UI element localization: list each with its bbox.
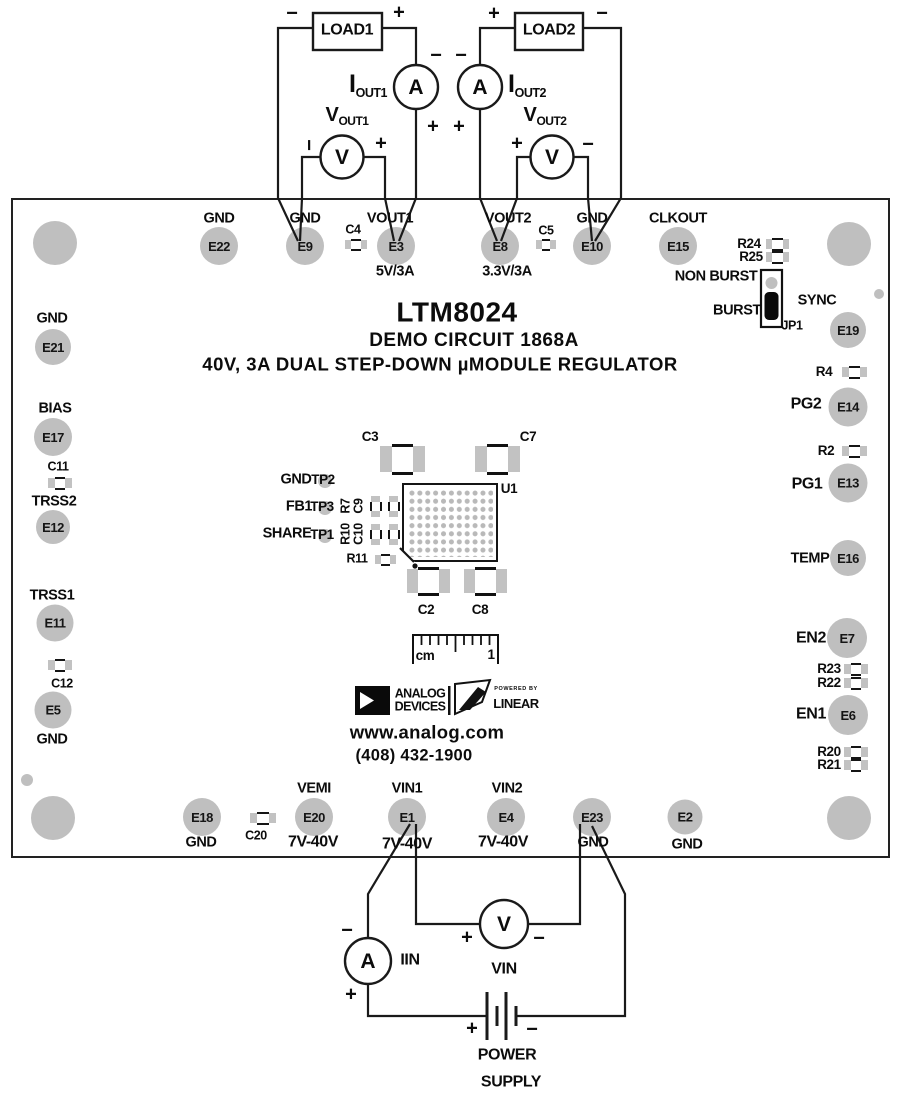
- website-text: www.analog.com: [350, 722, 505, 741]
- analog-devices-logo: [355, 686, 390, 715]
- pad-e23-id: E23: [581, 810, 603, 825]
- pad-e8: E8: [481, 227, 519, 265]
- pad-e4-rating: 7V-40V: [478, 835, 528, 852]
- pad-e15-id: E15: [667, 239, 689, 254]
- iout1-subscript: OUT1: [356, 86, 387, 100]
- pad-e11-label: TRSS1: [30, 588, 75, 603]
- pad-e9-id: E9: [298, 239, 313, 254]
- pad-e11-id: E11: [45, 616, 66, 631]
- pad-e1-rating: 7V-40V: [382, 837, 432, 854]
- pad-e6-id: E6: [841, 708, 856, 723]
- pad-e23-label: GND: [577, 835, 608, 850]
- logo-linear-text: LINEAR: [493, 697, 538, 711]
- capacitor-c5: [536, 240, 556, 249]
- capacitor-c2-label: C2: [418, 603, 434, 617]
- vout2-voltmeter-letter: V: [545, 147, 559, 169]
- pad-e20: E20: [295, 798, 333, 836]
- pad-e16: E16: [830, 540, 866, 576]
- testpoint-tp2-label: TP2: [311, 473, 335, 487]
- capacitor-c11-label: C11: [47, 460, 68, 473]
- module-u1-label: U1: [501, 482, 517, 496]
- pad-e16-id: E16: [837, 551, 859, 566]
- via-bottom-left: [21, 774, 33, 786]
- pad-e9-label: GND: [289, 211, 320, 226]
- pad-e3-label: VOUT1: [367, 211, 413, 226]
- pad-e8-label: VOUT2: [485, 211, 531, 226]
- capacitor-c11: [48, 478, 72, 488]
- pad-e2-id: E2: [678, 810, 693, 825]
- capacitor-c4: [345, 240, 367, 249]
- pad-e12: E12: [36, 510, 70, 544]
- pad-e4-id: E4: [499, 810, 514, 825]
- iin-minus-sign: −: [341, 921, 353, 942]
- pad-e16-label: TEMP: [791, 551, 830, 566]
- load2-label: LOAD2: [523, 23, 575, 40]
- iin-ammeter-letter: A: [360, 951, 375, 973]
- pad-e12-label: TRSS2: [32, 494, 77, 509]
- load2-minus-sign: −: [596, 4, 608, 25]
- capacitor-c7: [475, 446, 520, 472]
- pad-e13-id: E13: [837, 476, 859, 491]
- resistor-r21-label: R21: [817, 758, 841, 772]
- testpoint-tp1-label: TP1: [310, 528, 334, 542]
- vout2-minus-sign: −: [582, 135, 594, 156]
- via-top-right: [874, 289, 884, 299]
- iin-label: IIN: [400, 953, 419, 970]
- load2-plus-sign: +: [488, 4, 500, 25]
- capacitor-c8: [464, 569, 507, 593]
- pad-e20-label: VEMI: [297, 781, 331, 796]
- capacitor-c12: [48, 660, 72, 670]
- resistor-r25-label: R25: [739, 250, 763, 264]
- pad-e3: E3: [377, 227, 415, 265]
- resistor-r2-label: R2: [818, 444, 834, 458]
- load1-minus-sign: −: [286, 4, 298, 25]
- pad-e15: E15: [659, 227, 697, 265]
- pad-e5-label: GND: [36, 732, 67, 747]
- pad-e10-id: E10: [581, 239, 603, 254]
- pad-e10: E10: [573, 227, 611, 265]
- vout1-symbol: V: [326, 104, 339, 126]
- iout1-ammeter-letter: A: [408, 77, 423, 99]
- pad-e18: E18: [183, 798, 221, 836]
- pad-e19-id: E19: [837, 323, 859, 338]
- vin-voltmeter-letter: V: [497, 914, 511, 936]
- capacitor-c4-label: C4: [345, 223, 360, 236]
- vin-minus-sign: −: [533, 929, 545, 950]
- pad-e12-id: E12: [42, 520, 64, 535]
- load1-plus-sign: +: [393, 3, 405, 24]
- pad-e22-id: E22: [208, 239, 230, 254]
- board-subtitle: DEMO CIRCUIT 1868A: [369, 331, 579, 351]
- iin-plus-sign: +: [345, 985, 357, 1006]
- pad-e18-id: E18: [191, 810, 213, 825]
- ruler-mark-label: 1: [487, 648, 494, 662]
- iout2-minus-sign: −: [455, 46, 467, 67]
- iout1-label: IOUT1: [349, 70, 387, 100]
- pad-e1: E1: [388, 798, 426, 836]
- pad-e1-id: E1: [400, 810, 415, 825]
- power-supply-label-line2: SUPPLY: [481, 1075, 541, 1092]
- resistor-r11: [375, 555, 396, 564]
- pad-e8-id: E8: [493, 239, 508, 254]
- vout1-label: VOUT1: [326, 104, 369, 128]
- capacitor-c3: [380, 446, 425, 472]
- capacitor-c8-label: C8: [472, 603, 488, 617]
- module-u1: [402, 483, 498, 562]
- pad-e3-rating: 5V/3A: [376, 264, 414, 279]
- power-supply-label-line1: POWER: [478, 1048, 536, 1065]
- mounting-hole-bottom-left: [31, 796, 75, 840]
- pad-e7-id: E7: [840, 631, 855, 646]
- ruler-unit-label: cm: [416, 649, 435, 663]
- jumper-jp1-label: JP1: [781, 319, 802, 332]
- vout2-symbol: V: [524, 104, 537, 126]
- capacitor-c3-label: C3: [362, 430, 378, 444]
- vout2-label: VOUT2: [524, 104, 567, 128]
- capacitor-c20-label: C20: [245, 829, 267, 842]
- pad-e21-label: GND: [36, 311, 67, 326]
- capacitor-c12-label: C12: [51, 677, 73, 690]
- pad-e17-id: E17: [42, 430, 64, 445]
- resistor-r25: [766, 252, 789, 262]
- pad-e4: E4: [487, 798, 525, 836]
- pad-e6-label: EN1: [796, 707, 826, 724]
- pad-e8-rating: 3.3V/3A: [482, 264, 532, 279]
- vout1-voltmeter-letter: V: [335, 147, 349, 169]
- capacitor-c2: [407, 569, 450, 593]
- pad-e14-label: PG2: [791, 397, 822, 414]
- pad-e15-label: CLKOUT: [649, 211, 707, 226]
- resistor-r22: [844, 678, 868, 688]
- pad-e18-label: GND: [185, 835, 216, 850]
- capacitor-c7-label: C7: [520, 430, 536, 444]
- board-description: 40V, 3A DUAL STEP-DOWN µMODULE REGULATOR: [202, 354, 677, 373]
- pad-e5: E5: [35, 692, 72, 729]
- resistor-r7: [371, 496, 380, 517]
- mounting-hole-bottom-right: [827, 796, 871, 840]
- vin-label: VIN: [491, 962, 516, 979]
- battery-plus-sign: +: [466, 1019, 478, 1040]
- vin-plus-sign: +: [461, 928, 473, 949]
- pad-e22: E22: [200, 227, 238, 265]
- pad-e2-label: GND: [671, 837, 702, 852]
- pad-e13: E13: [829, 464, 868, 503]
- resistor-r23: [844, 664, 868, 674]
- vout1-minus-sign: −: [298, 139, 319, 151]
- demo-board-figure: E22 E9 E3 E8 E10 E15 E21 E17 E12 E11 E5 …: [0, 0, 904, 1100]
- pad-e3-id: E3: [389, 239, 404, 254]
- resistor-r2: [842, 446, 867, 456]
- capacitor-c10-label: C10: [352, 523, 365, 545]
- pad-e7-label: EN2: [796, 631, 826, 648]
- battery-minus-sign: −: [526, 1020, 538, 1041]
- pad-e11: E11: [37, 605, 74, 642]
- iout2-label: IOUT2: [508, 70, 546, 100]
- jumper-burst-label: BURST: [713, 303, 761, 318]
- bga-ball-grid: [407, 488, 493, 557]
- load1-label: LOAD1: [321, 23, 373, 40]
- testpoint-tp2-signal: GND: [280, 472, 311, 487]
- testpoint-tp3-label: TP3: [310, 500, 334, 514]
- pad-e13-label: PG1: [792, 477, 823, 494]
- resistor-r24: [766, 239, 789, 249]
- resistor-r11-label: R11: [346, 552, 367, 565]
- pad-e20-id: E20: [303, 810, 325, 825]
- mounting-hole-top-right: [827, 222, 871, 266]
- mounting-hole-top-left: [33, 221, 77, 265]
- logo-devices-text: DEVICES: [395, 700, 446, 713]
- resistor-r4-label: R4: [816, 365, 832, 379]
- iout1-plus-sign: +: [427, 117, 439, 138]
- pad-e1-label: VIN1: [392, 781, 423, 796]
- pad-e14-id: E14: [837, 400, 859, 415]
- iout2-subscript: OUT2: [515, 86, 546, 100]
- capacitor-c9-label: C9: [352, 498, 365, 513]
- resistor-r20: [844, 747, 868, 757]
- capacitor-c20: [250, 813, 276, 823]
- pad-e21-id: E21: [42, 340, 64, 355]
- jumper-non-burst-label: NON BURST: [675, 269, 758, 284]
- iout1-minus-sign: −: [430, 46, 442, 67]
- vout1-plus-sign: +: [375, 134, 387, 155]
- pad-e10-label: GND: [576, 211, 607, 226]
- testpoint-tp3-signal: FB1: [286, 499, 312, 514]
- resistor-r22-label: R22: [817, 676, 841, 690]
- pad-e6: E6: [828, 695, 868, 735]
- iout2-plus-sign: +: [453, 117, 465, 138]
- pad-e17: E17: [34, 418, 72, 456]
- vout2-subscript: OUT2: [536, 114, 566, 128]
- board-title: LTM8024: [396, 297, 517, 326]
- pad-e19: E19: [830, 312, 866, 348]
- pad-e4-label: VIN2: [492, 781, 523, 796]
- capacitor-c9: [389, 496, 398, 517]
- resistor-r4: [842, 367, 867, 377]
- iout2-ammeter-letter: A: [472, 77, 487, 99]
- vout2-plus-sign: +: [511, 134, 523, 155]
- resistor-r21: [844, 760, 868, 770]
- capacitor-c5-label: C5: [538, 224, 553, 237]
- pad-e20-rating: 7V-40V: [288, 835, 338, 852]
- capacitor-c10: [389, 524, 398, 545]
- pad-e7: E7: [827, 618, 867, 658]
- pad-e5-id: E5: [46, 703, 61, 718]
- pad-e23: E23: [573, 798, 611, 836]
- pad-e17-label: BIAS: [38, 401, 71, 416]
- pad-e14: E14: [829, 388, 868, 427]
- vout1-subscript: OUT1: [338, 114, 368, 128]
- pad-e19-label: SYNC: [798, 293, 837, 308]
- resistor-r10: [371, 524, 380, 545]
- pad-e2: E2: [668, 800, 703, 835]
- testpoint-tp1-signal: SHARE: [263, 526, 312, 541]
- pad-e21: E21: [35, 329, 71, 365]
- pad-e22-label: GND: [203, 211, 234, 226]
- phone-text: (408) 432-1900: [355, 747, 472, 764]
- pad-e9: E9: [286, 227, 324, 265]
- logo-powered-by-text: POWERED BY: [494, 687, 538, 693]
